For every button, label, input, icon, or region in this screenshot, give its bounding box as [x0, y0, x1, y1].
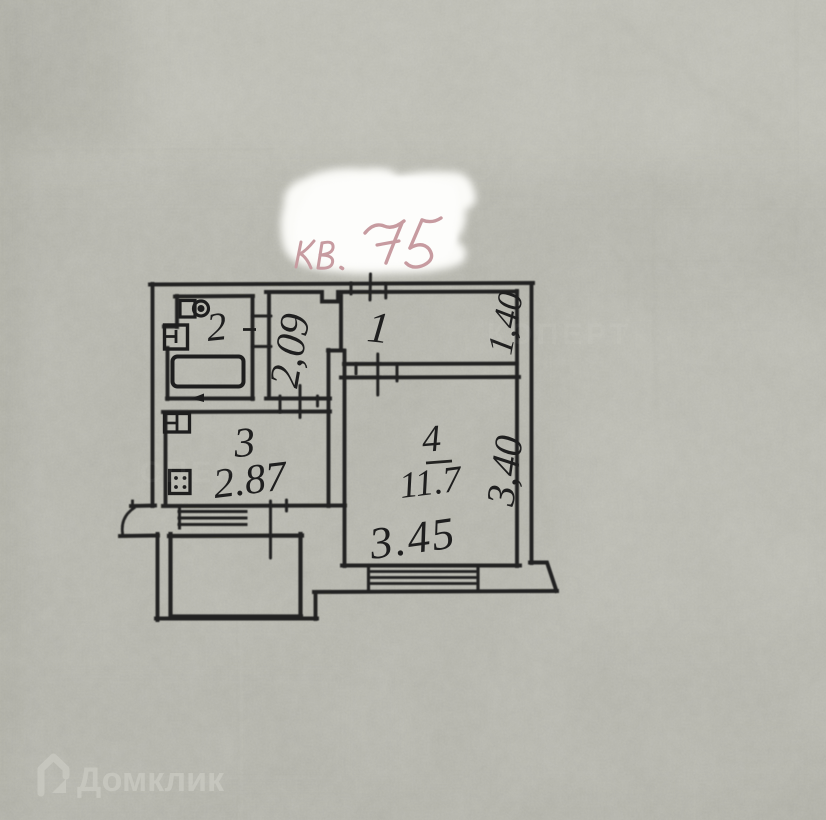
svg-text:СПЕР: СПЕР — [140, 456, 239, 489]
svg-text:КОПЕРТ: КОПЕРТ — [487, 318, 632, 351]
svg-text:4: 4 — [420, 417, 443, 460]
svg-text:Домклик: Домклик — [77, 761, 225, 799]
svg-text:11.7: 11.7 — [397, 458, 465, 506]
